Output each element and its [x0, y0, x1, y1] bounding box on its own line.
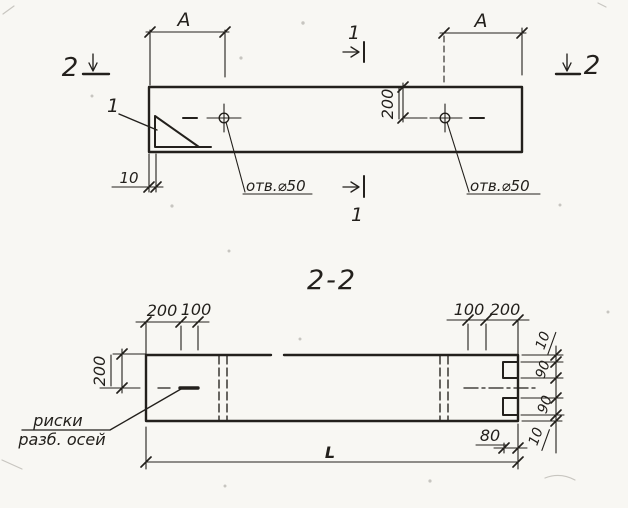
dim-lines [146, 30, 229, 85]
hole-label-left: отв.⌀50 [246, 177, 306, 195]
axis-label-line2: разб. осей [17, 430, 105, 449]
dim-lines [440, 28, 526, 75]
drawing-sheet: A A 200 10 [0, 0, 628, 508]
dim-200-label: 200 [378, 89, 397, 120]
dims-right-vertical: 10 90 90 10 [521, 327, 564, 453]
technical-drawing: A A 200 10 [0, 0, 628, 508]
dim-lines [403, 83, 427, 122]
hole-callout-left: отв.⌀50 [226, 122, 312, 195]
section-1-bottom-label: 1 [351, 204, 363, 226]
dim-right-10-top-label: 10 [533, 329, 554, 351]
section-mark-1-top: 1 [343, 22, 364, 62]
dim-10-label: 10 [119, 169, 138, 187]
dim-80-label: 80 [480, 426, 500, 445]
dim-a-right-label: A [473, 10, 488, 32]
section-beam-outline [146, 355, 518, 421]
section-title: 2-2 [307, 265, 357, 296]
dim-lines [136, 322, 209, 354]
dim-tr-100-label: 100 [454, 300, 485, 319]
section-mark-2-left: 2 [62, 53, 109, 83]
dim-end-inset-10: 10 [112, 154, 163, 192]
plan-view: A A 200 10 [62, 9, 601, 226]
section-1-top-label: 1 [348, 22, 360, 44]
axis-marks-callout: риски разб. осей [17, 389, 181, 449]
hole-right-centerlines [430, 104, 462, 132]
dim-left-200-label: 200 [90, 356, 109, 387]
axis-label-line1: риски [32, 411, 82, 430]
dim-a-right: A [439, 10, 527, 85]
dims-top-left: 200 100 [136, 300, 211, 354]
plan-beam-outline [149, 87, 522, 152]
dim-a-left-label: A [176, 9, 191, 31]
dim-lines [447, 320, 529, 354]
dim-tr-200-label: 200 [490, 300, 521, 319]
dims-top-right: 100 200 [447, 300, 529, 354]
hole-callout-right: отв.⌀50 [447, 122, 540, 195]
hidden-hole-left [219, 356, 227, 420]
detail-1-label: 1 [107, 95, 119, 117]
dim-length-l: L [141, 427, 523, 469]
notch-upper [503, 362, 518, 378]
leader-line [119, 114, 157, 130]
dim-tl-100-label: 100 [181, 300, 212, 319]
section-view: 2-2 200 200 100 [17, 265, 564, 469]
dim-left-200: 200 [90, 349, 146, 393]
section-2-left-label: 2 [62, 53, 79, 83]
dim-a-left: A [145, 9, 230, 85]
section-2-right-label: 2 [584, 51, 601, 81]
notch-lower [503, 398, 518, 415]
section-mark-1-bottom: 1 [343, 176, 364, 226]
dim-right-90-bottom-label: 90 [535, 393, 556, 415]
hole-left-centerlines [207, 104, 241, 132]
dim-tl-200-label: 200 [147, 301, 178, 320]
hidden-hole-right [440, 356, 448, 420]
hole-label-right: отв.⌀50 [470, 177, 530, 195]
corner-triangle-mark [155, 116, 211, 147]
section-mark-2-right: 2 [556, 51, 600, 81]
dim-l-label: L [325, 443, 335, 462]
